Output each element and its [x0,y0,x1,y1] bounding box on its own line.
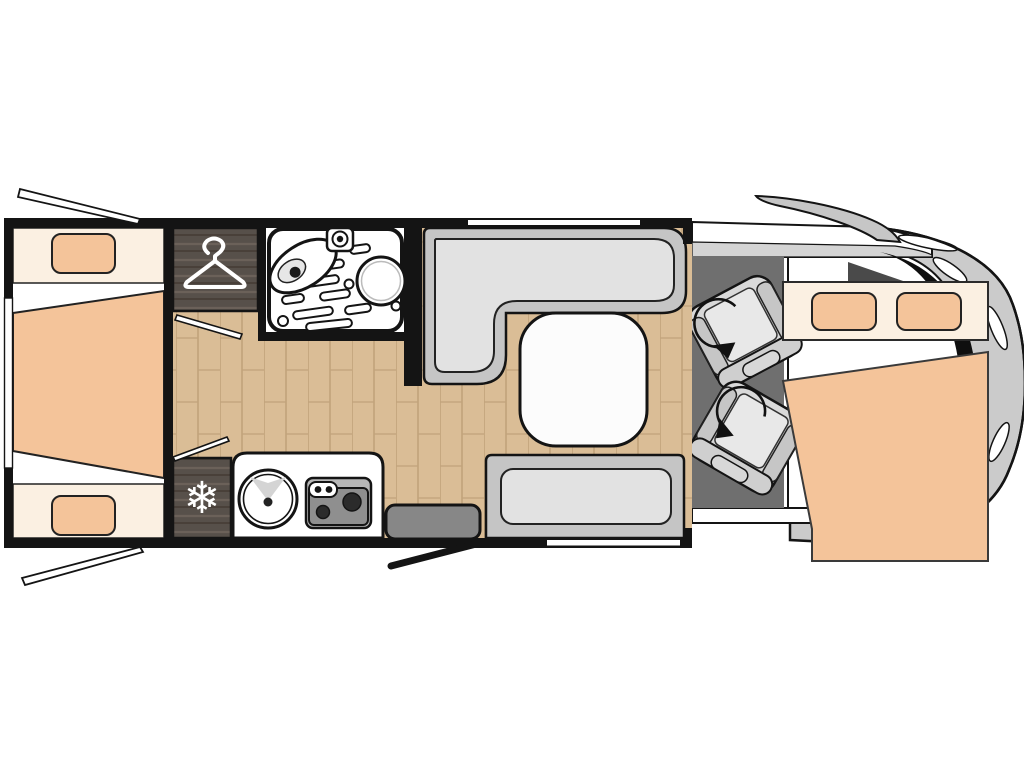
knob-panel [309,482,337,497]
interior-section: ❄ [13,228,692,539]
entry-step [386,505,480,539]
window-bench [547,540,680,546]
open-window-flap-bottom [22,547,143,585]
wall-bathroom-bottom [258,332,422,341]
stove [306,478,371,528]
pillow [52,496,115,535]
wall-bathroom-right [404,228,422,386]
rear-bed-mattress [13,291,164,478]
wall-right-bottom [683,528,692,548]
wardrobe [173,228,258,311]
kitchen [233,453,383,538]
wall-bedroom-partition [164,228,173,538]
sink-drain [264,498,273,507]
pillow [52,234,115,273]
fridge: ❄ [173,458,231,538]
cab-bottom-sill [692,508,814,523]
motorhome-floorplan: ❄ [0,0,1024,768]
kitchen-sink [239,470,297,528]
pillow [897,293,961,330]
knob [326,486,333,493]
pillow [812,293,876,330]
dinette-table [520,313,647,446]
bathroom [261,228,406,334]
cab-bed-mattress [783,352,988,561]
wash-basin [357,257,405,305]
wall-right-top [683,218,692,244]
window-rear [5,298,13,468]
burner-large [343,493,361,511]
burner-small [317,506,330,519]
knob [315,486,322,493]
floorplan-canvas: ❄ [0,0,1024,768]
wall-bathroom-left [258,228,266,340]
window-dinette [468,220,640,225]
cab-drop-down-bed [783,282,988,561]
snowflake-icon: ❄ [184,473,221,524]
side-bench-cushion [501,469,671,524]
side-bench [486,455,684,538]
shower-head [327,228,353,251]
rear-bedroom [13,228,164,538]
